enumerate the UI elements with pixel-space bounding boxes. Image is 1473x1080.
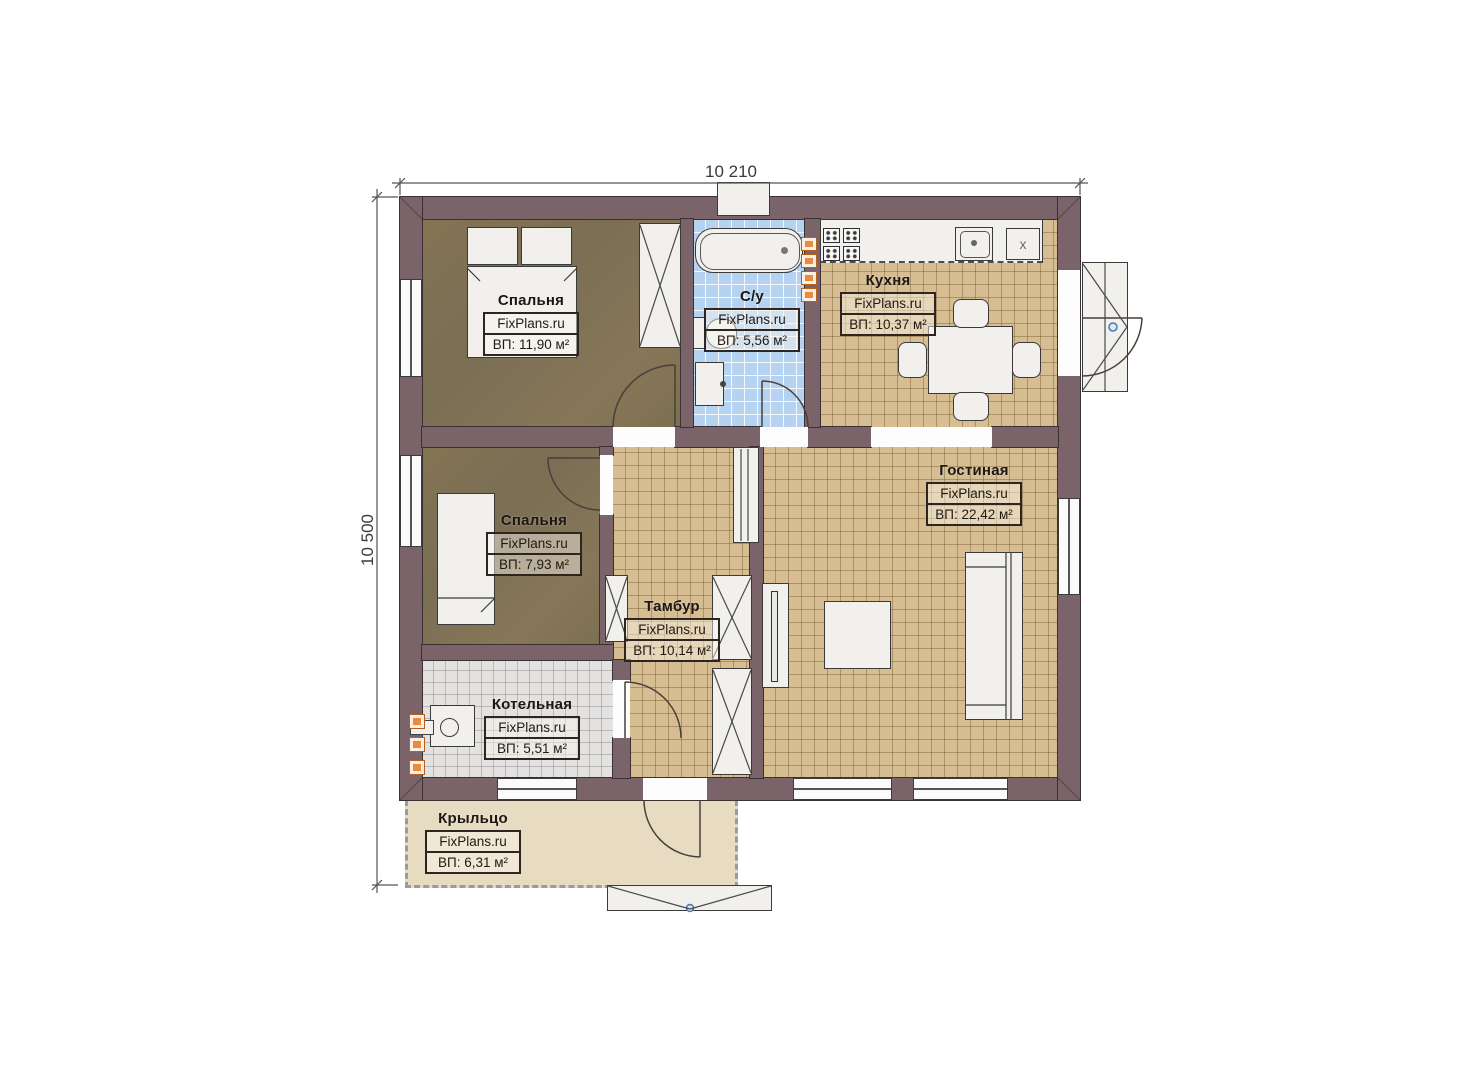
tv-panel xyxy=(771,591,778,682)
door-opening-entrance xyxy=(643,778,707,800)
stove-burner xyxy=(823,228,840,243)
watermark-box: FixPlans.ru ВП: 6,31 м² xyxy=(425,830,521,874)
watermark-box: FixPlans.ru ВП: 22,42 м² xyxy=(926,482,1022,526)
room-area: ВП: 22,42 м² xyxy=(928,505,1020,524)
room-name: Котельная xyxy=(492,696,572,713)
steps-porch xyxy=(607,885,772,911)
bed-double-pillow-right xyxy=(521,227,572,265)
sofa xyxy=(965,552,1023,720)
boiler-dial xyxy=(440,718,459,737)
chimney-block xyxy=(409,714,425,729)
door-opening-boiler xyxy=(613,680,630,738)
watermark-box: FixPlans.ru ВП: 10,14 м² xyxy=(624,618,720,662)
stove-burner xyxy=(843,228,860,243)
chimney-block xyxy=(409,737,425,752)
dimension-width-label: 10 210 xyxy=(705,162,757,182)
watermark-text: FixPlans.ru xyxy=(486,718,578,739)
chimney-block xyxy=(801,288,817,302)
coffee-table xyxy=(824,601,891,669)
watermark-box: FixPlans.ru ВП: 11,90 м² xyxy=(483,312,579,356)
kitchen-chair-left xyxy=(898,342,927,378)
watermark-box: FixPlans.ru ВП: 5,56 м² xyxy=(704,308,800,352)
wall-boiler-east-b xyxy=(613,738,630,778)
room-label-bedroom1: Спальня FixPlans.ru ВП: 11,90 м² xyxy=(483,292,579,356)
watermark-text: FixPlans.ru xyxy=(485,314,577,335)
wall-bedroom1-east xyxy=(681,219,693,427)
stove-burner xyxy=(843,246,860,261)
room-label-boiler: Котельная FixPlans.ru ВП: 5,51 м² xyxy=(484,696,580,760)
wall-middle-4 xyxy=(992,427,1058,447)
door-opening-bedroom2 xyxy=(600,455,613,515)
wall-boiler-north xyxy=(422,645,613,660)
wardrobe-bedroom1 xyxy=(639,223,681,348)
room-name: Спальня xyxy=(501,512,567,529)
room-area: ВП: 5,56 м² xyxy=(706,331,798,350)
chimney-block xyxy=(409,760,425,775)
door-opening-kitchen-exterior xyxy=(1058,270,1080,376)
room-area: ВП: 5,51 м² xyxy=(486,739,578,758)
room-label-porch: Крыльцо FixPlans.ru ВП: 6,31 м² xyxy=(425,810,521,874)
window-boiler-bottom xyxy=(497,778,577,800)
room-area: ВП: 10,37 м² xyxy=(842,315,934,334)
kitchen-chair-top xyxy=(953,299,989,328)
room-label-bedroom2: Спальня FixPlans.ru ВП: 7,93 м² xyxy=(486,512,582,576)
kitchen-sink-drain xyxy=(971,240,977,246)
window-bedroom2-left xyxy=(400,455,422,547)
watermark-text: FixPlans.ru xyxy=(928,484,1020,505)
wall-boiler-east-a xyxy=(613,660,630,680)
wall-bedroom2-east-a xyxy=(600,447,613,455)
watermark-text: FixPlans.ru xyxy=(488,534,580,555)
room-name: Спальня xyxy=(498,292,564,309)
watermark-box: FixPlans.ru ВП: 10,37 м² xyxy=(840,292,936,336)
chimney-block xyxy=(801,254,817,268)
window-living-right xyxy=(1058,498,1080,595)
watermark-box: FixPlans.ru ВП: 7,93 м² xyxy=(486,532,582,576)
door-opening-bathroom xyxy=(760,427,808,447)
chimney-block xyxy=(801,237,817,251)
steps-side-entrance xyxy=(1082,262,1128,392)
watermark-text: FixPlans.ru xyxy=(427,832,519,853)
watermark-text: FixPlans.ru xyxy=(706,310,798,331)
watermark-text: FixPlans.ru xyxy=(626,620,718,641)
wardrobe-tambour-b xyxy=(712,668,752,775)
window-bedroom1-left xyxy=(400,279,422,377)
room-label-tambour: Тамбур FixPlans.ru ВП: 10,14 м² xyxy=(624,598,720,662)
room-label-bathroom: С/у FixPlans.ru ВП: 5,56 м² xyxy=(704,288,800,352)
opening-kitchen-living xyxy=(871,427,992,447)
kitchen-appliance-box: x xyxy=(1006,228,1040,260)
room-name: Крыльцо xyxy=(438,810,508,827)
window-living-bottom-1 xyxy=(793,778,892,800)
room-area: ВП: 10,14 м² xyxy=(626,641,718,660)
door-opening-bedroom1 xyxy=(613,427,675,447)
watermark-box: FixPlans.ru ВП: 5,51 м² xyxy=(484,716,580,760)
kitchen-chair-right xyxy=(1012,342,1041,378)
room-name: С/у xyxy=(740,288,764,305)
room-area: ВП: 7,93 м² xyxy=(488,555,580,574)
wall-middle-1 xyxy=(422,427,613,447)
room-name: Тамбур xyxy=(644,598,700,615)
kitchen-appliance-label: x xyxy=(1020,236,1027,252)
room-name: Кухня xyxy=(866,272,911,289)
kitchen-chair-bottom xyxy=(953,392,989,421)
bed-double-pillow-left xyxy=(467,227,518,265)
kitchen-table xyxy=(928,326,1013,394)
closet-tambour-north xyxy=(733,447,759,543)
chimney-block xyxy=(801,271,817,285)
floor-plan-canvas: 10 210 10 500 xyxy=(0,0,1473,1080)
room-area: ВП: 11,90 м² xyxy=(485,335,577,354)
room-name: Гостиная xyxy=(939,462,1008,479)
stove-burner xyxy=(823,246,840,261)
bathtub-drain xyxy=(781,247,788,254)
room-label-living: Гостиная FixPlans.ru ВП: 22,42 м² xyxy=(926,462,1022,526)
wall-middle-2 xyxy=(675,427,760,447)
wall-middle-3 xyxy=(808,427,871,447)
washing-machine-knob xyxy=(720,381,726,387)
window-living-bottom-2 xyxy=(913,778,1008,800)
room-area: ВП: 6,31 м² xyxy=(427,853,519,872)
watermark-text: FixPlans.ru xyxy=(842,294,934,315)
vent-shaft xyxy=(717,182,770,216)
dimension-height-label: 10 500 xyxy=(358,514,378,566)
room-label-kitchen: Кухня FixPlans.ru ВП: 10,37 м² xyxy=(840,272,936,336)
